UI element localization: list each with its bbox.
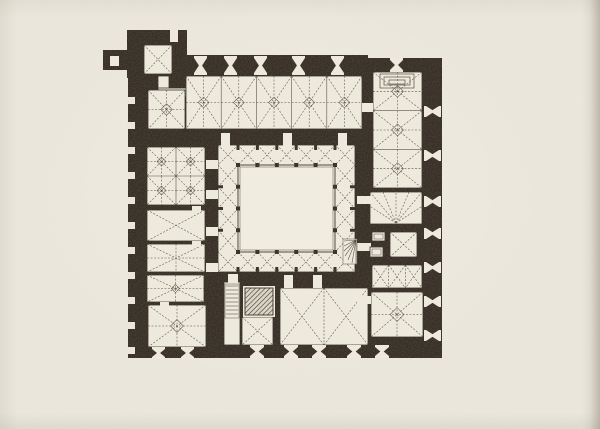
door-opening [206, 190, 218, 199]
door-opening [357, 296, 371, 304]
wall-gap [127, 297, 135, 304]
window-opening [424, 106, 441, 117]
room-southeast-chamber [371, 292, 423, 337]
window-opening [424, 262, 441, 273]
oven [370, 247, 383, 257]
round-pier [131, 282, 143, 294]
door-opening [362, 103, 373, 112]
round-pier [131, 307, 143, 319]
room-north-hall [186, 76, 362, 129]
round-pier [131, 157, 143, 169]
room-west-upper-hall [147, 147, 205, 205]
door-opening [110, 56, 119, 66]
room-nw-tower-chamber [144, 45, 172, 74]
window-opening [181, 347, 194, 359]
room-southwest-hall [148, 305, 206, 347]
room-northeast-hall [373, 72, 422, 188]
room-east-small-chamber [390, 232, 417, 257]
door-opening [206, 160, 218, 169]
scanned-page [0, 0, 600, 429]
door-opening [192, 206, 201, 212]
window-opening [424, 330, 441, 341]
round-pier [131, 332, 143, 344]
cloister-courtyard-layer [218, 145, 355, 272]
door-opening [357, 243, 371, 251]
spiral-stair [343, 239, 357, 264]
door-opening [284, 275, 293, 288]
room-west-chamber-1 [147, 210, 205, 241]
door-opening [283, 133, 292, 146]
wall-gap [127, 97, 135, 104]
wall-gap [127, 222, 135, 229]
room-west-chamber-2 [147, 244, 205, 272]
window-opening [312, 345, 326, 358]
door-opening [206, 227, 218, 236]
window-opening [224, 56, 237, 75]
door-opening [357, 196, 371, 204]
window-opening [152, 347, 165, 359]
window-opening [424, 296, 441, 307]
round-pier [131, 182, 143, 194]
round-pier [131, 107, 143, 119]
straight-stair [225, 284, 239, 318]
wall-gap [127, 272, 135, 279]
door-opening [170, 30, 178, 42]
window-opening [375, 345, 389, 358]
window-opening [292, 56, 305, 75]
room-west-chamber-3 [147, 275, 204, 302]
window-opening [284, 345, 298, 358]
room-east-triple-chamber [372, 265, 422, 288]
door-opening [206, 263, 218, 272]
room-east-fan-chamber [370, 192, 422, 224]
window-opening [250, 345, 264, 358]
door-opening [313, 275, 322, 288]
wall-gap [127, 197, 135, 204]
oven [372, 232, 385, 241]
window-opening [331, 56, 344, 75]
door-opening [338, 133, 347, 146]
round-pier [131, 257, 143, 269]
room-south-hall [280, 288, 368, 345]
floor-plan-svg [0, 0, 600, 429]
wall-gap [127, 172, 135, 179]
room-north-hall-west-bay [148, 90, 185, 129]
window-opening [424, 150, 441, 161]
round-pier [131, 132, 143, 144]
wall-gap [127, 322, 135, 329]
door-opening [192, 241, 201, 247]
room-south-small-chamber [242, 317, 273, 345]
hatched-pier [243, 286, 275, 317]
scan-edge-shadow [590, 0, 600, 429]
window-opening [194, 56, 207, 75]
round-pier [131, 82, 143, 94]
door-opening [228, 274, 238, 283]
window-opening [347, 345, 361, 358]
wall-gap [127, 247, 135, 254]
wall-gap [127, 122, 135, 129]
door-opening [160, 302, 169, 307]
wall-gap [127, 347, 135, 354]
wall-gap [127, 147, 135, 154]
round-pier [131, 207, 143, 219]
round-pier [131, 232, 143, 244]
courtyard [238, 165, 335, 252]
window-opening [424, 228, 441, 239]
door-opening [221, 133, 230, 146]
window-opening [254, 56, 267, 75]
window-opening [390, 58, 403, 72]
window-opening [424, 196, 441, 207]
